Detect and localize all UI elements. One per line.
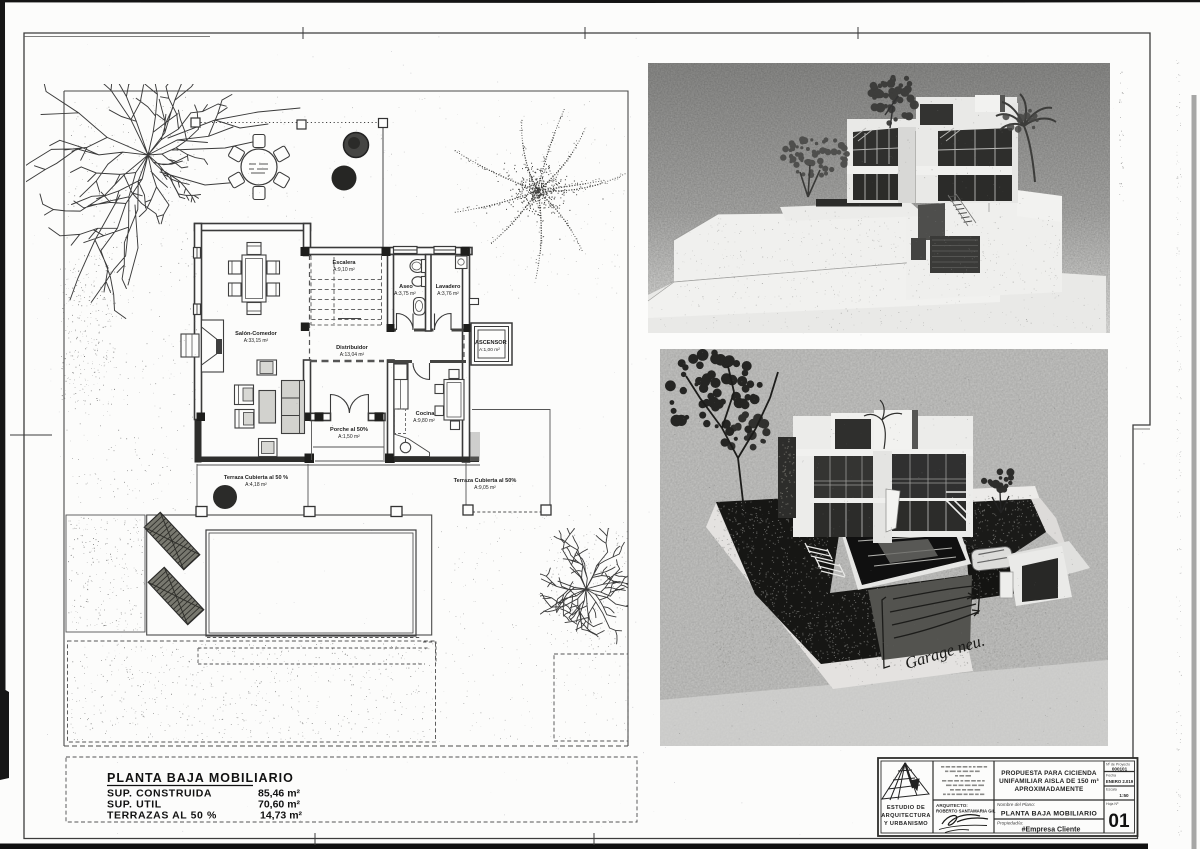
svg-text:#Empresa Cliente: #Empresa Cliente (1022, 827, 1081, 834)
svg-text:ENERO 2.019: ENERO 2.019 (1106, 779, 1134, 784)
svg-text:Distribuidor: Distribuidor (336, 345, 369, 351)
svg-text:APROXIMADAMENTE: APROXIMADAMENTE (1014, 786, 1084, 793)
svg-text:Escalera: Escalera (332, 260, 356, 266)
svg-text:Aseo: Aseo (399, 284, 413, 290)
svg-text:ESTUDIO DE: ESTUDIO DE (887, 805, 925, 811)
svg-text:Salón-Comedor: Salón-Comedor (235, 331, 277, 337)
svg-text:Terraza Cubierta al 50%: Terraza Cubierta al 50% (454, 478, 517, 484)
svg-text:Hoja Nº: Hoja Nº (1106, 802, 1119, 806)
svg-text:Cocina: Cocina (416, 411, 436, 417)
svg-text:Porche al 50%: Porche al 50% (330, 427, 368, 433)
svg-text:UNIFAMILIAR AISLA DE 150 m³: UNIFAMILIAR AISLA DE 150 m³ (999, 778, 1099, 785)
svg-text:Propiedad/a:: Propiedad/a: (997, 821, 1024, 826)
svg-text:A:9,80 m²: A:9,80 m² (413, 418, 435, 424)
svg-text:A:3,76 m²: A:3,76 m² (437, 291, 459, 297)
svg-text:ASCENSOR: ASCENSOR (475, 340, 507, 346)
svg-text:A:1,50 m²: A:1,50 m² (338, 434, 360, 440)
svg-text:A:9,10 m²: A:9,10 m² (333, 267, 355, 273)
svg-text:PROPUESTA PARA CICIENDA: PROPUESTA PARA CICIENDA (1001, 770, 1097, 777)
svg-text:Escala: Escala (1106, 788, 1117, 792)
svg-text:000101: 000101 (1112, 767, 1128, 772)
svg-text:Terraza Cubierta al 50 %: Terraza Cubierta al 50 % (224, 475, 288, 481)
svg-text:Lavadero: Lavadero (436, 284, 461, 290)
svg-text:Nombre del Plano:: Nombre del Plano: (997, 802, 1036, 807)
svg-text:A:9,05 m²: A:9,05 m² (474, 485, 496, 491)
svg-text:PLANTA BAJA MOBILIARIO: PLANTA BAJA MOBILIARIO (107, 771, 294, 785)
svg-text:ROBERTO SANTAMARIA GIL: ROBERTO SANTAMARIA GIL (936, 809, 996, 814)
svg-text:A:13,04 m²: A:13,04 m² (340, 352, 365, 358)
svg-text:A:4,18 m²: A:4,18 m² (245, 482, 267, 488)
svg-text:A:3,75 m²: A:3,75 m² (394, 291, 416, 297)
svg-text:Y URBANISMO: Y URBANISMO (884, 821, 928, 827)
svg-text:1:50: 1:50 (1119, 793, 1129, 798)
svg-text:01: 01 (1108, 811, 1130, 832)
svg-text:A:33,15 m²: A:33,15 m² (244, 338, 269, 344)
svg-text:A:1,00 m²: A:1,00 m² (479, 347, 500, 353)
svg-text:ARQUITECTURA: ARQUITECTURA (881, 813, 931, 819)
svg-text:Fecha: Fecha (1106, 774, 1116, 778)
svg-text:TERRAZAS AL 50 %: TERRAZAS AL 50 % (107, 810, 217, 822)
svg-text:14,73 m²: 14,73 m² (260, 810, 303, 822)
svg-text:ARQUITECTO:: ARQUITECTO: (936, 803, 968, 808)
svg-text:PLANTA BAJA MOBILIARIO: PLANTA BAJA MOBILIARIO (1001, 811, 1097, 818)
